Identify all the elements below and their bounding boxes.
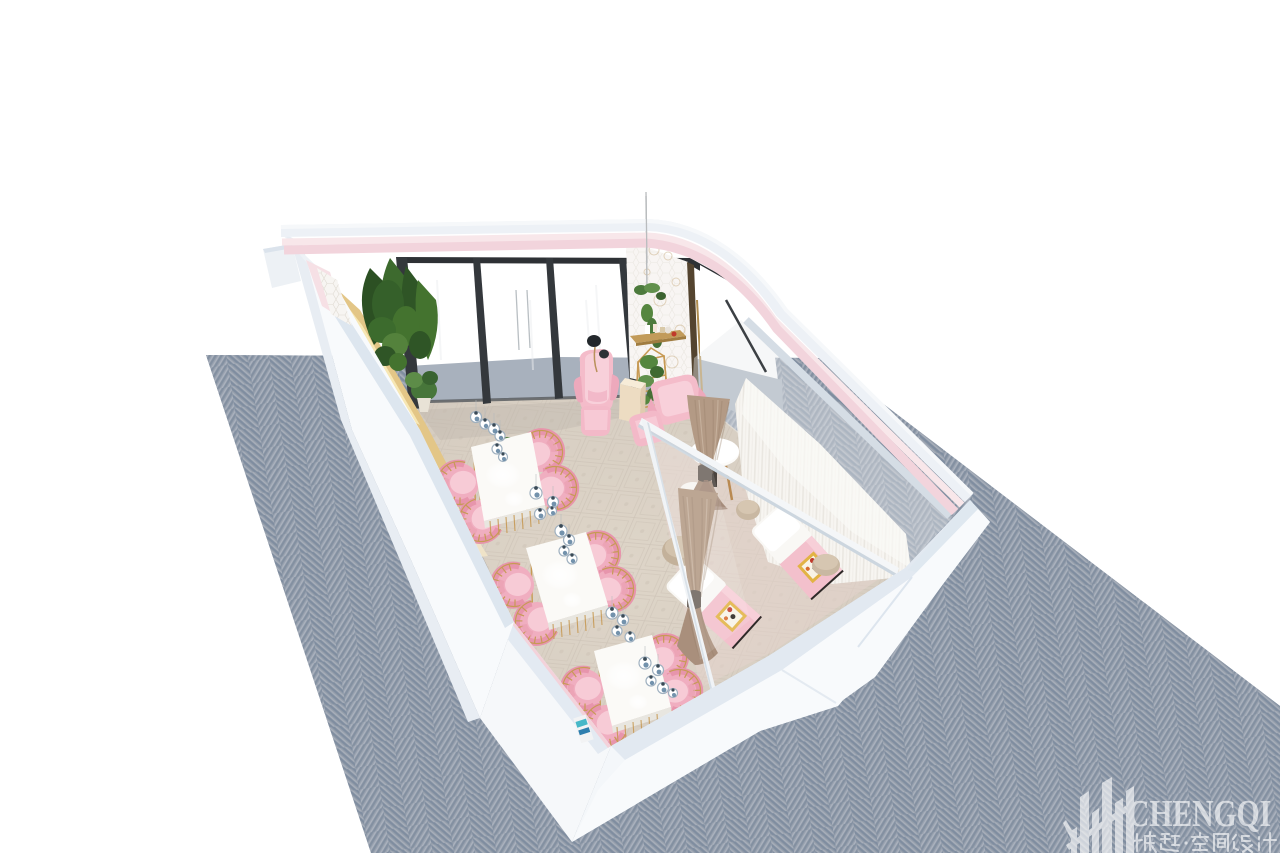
svg-text:CHENGQI: CHENGQI <box>1128 794 1271 835</box>
